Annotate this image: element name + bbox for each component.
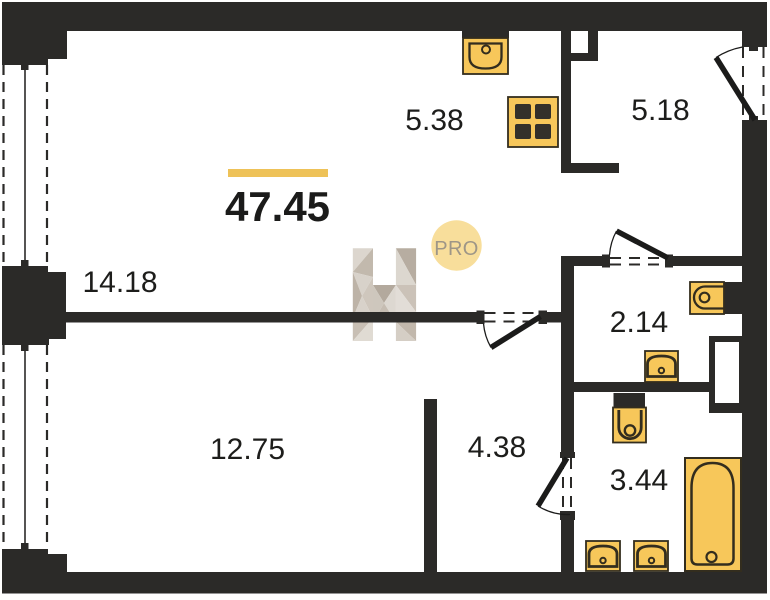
svg-text:12.75: 12.75 xyxy=(210,433,285,466)
svg-text:2.14: 2.14 xyxy=(610,306,668,339)
svg-text:3.44: 3.44 xyxy=(610,464,668,497)
svg-text:5.18: 5.18 xyxy=(631,94,689,127)
svg-text:47.45: 47.45 xyxy=(225,183,330,230)
svg-text:4.38: 4.38 xyxy=(468,431,526,464)
svg-text:14.18: 14.18 xyxy=(82,266,157,299)
svg-text:5.38: 5.38 xyxy=(405,104,463,137)
svg-text:PRO: PRO xyxy=(434,238,479,260)
